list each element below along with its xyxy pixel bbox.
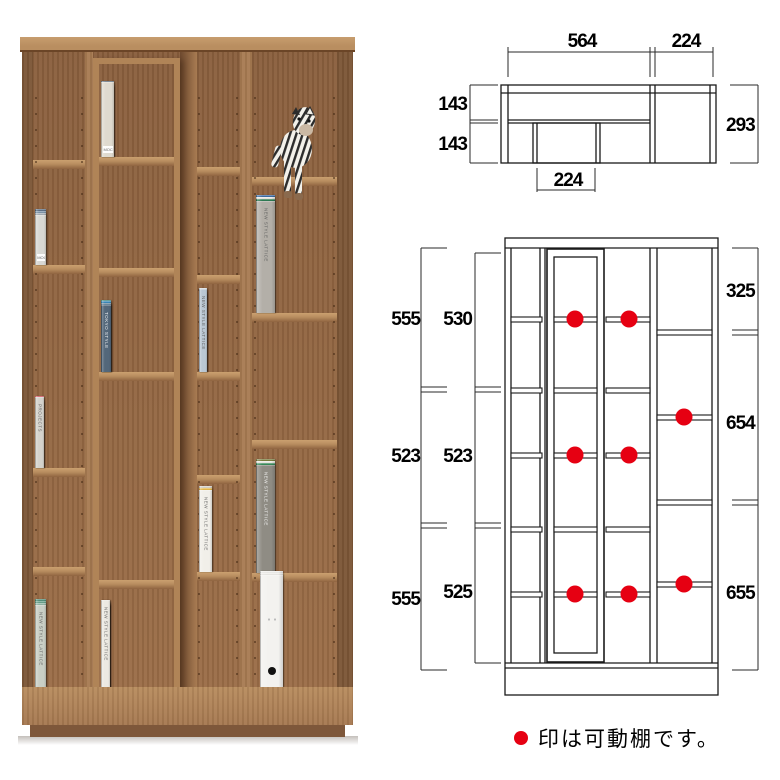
shelf-board	[197, 167, 240, 176]
frame-divider	[22, 52, 33, 698]
book-spine: MOCO	[35, 215, 46, 265]
dim-right-mid: 654	[726, 413, 756, 434]
dim-depth-back: 143	[438, 94, 467, 115]
binder-ring	[268, 667, 276, 675]
pin-holes	[236, 97, 238, 677]
frame-divider	[240, 52, 252, 698]
dim-slider-width: 224	[554, 170, 584, 191]
cabinet-top	[20, 37, 355, 52]
spine-label: NEW STYLE LATTICE	[204, 497, 209, 551]
sliding-unit-shelf	[99, 580, 174, 589]
shelf-board	[33, 160, 85, 169]
spine-label: NEW STYLE LATTICE	[104, 607, 109, 661]
pin-holes	[254, 97, 256, 677]
top-view-body	[501, 85, 716, 163]
dim-right-bottom: 655	[726, 583, 756, 604]
book-spine: NEW STYLE LATTICE	[256, 201, 275, 313]
product-page: MOCOMOCOMOCOMOCOPROJECTSPROJECTSPROJECTS…	[0, 0, 780, 780]
adjustable-shelf-dot	[567, 586, 584, 603]
pin-holes	[333, 97, 335, 677]
shelf-board	[33, 567, 85, 576]
front-view-diagram: 555 523 555 530 523 525 325 654 655	[388, 233, 780, 768]
shelf-board	[197, 372, 240, 381]
pin-holes	[35, 97, 37, 677]
legend-text: 印は可動棚です。	[538, 723, 720, 753]
shelf-board	[197, 275, 240, 284]
shelf-board	[252, 440, 337, 449]
adjustable-shelf-dot	[567, 311, 584, 328]
sliding-unit-shelf	[99, 372, 174, 381]
shelf-board	[33, 265, 85, 274]
legend-red-dot-icon	[514, 731, 528, 745]
cabinet-plinth	[30, 725, 345, 737]
legend: 印は可動棚です。	[514, 723, 720, 753]
frame-divider	[337, 52, 353, 698]
book-spine	[260, 575, 283, 687]
dim-depth-front: 143	[438, 134, 467, 155]
dim-width-main: 564	[568, 31, 598, 52]
book-spine: NEW STYLE LATTICE	[199, 289, 207, 372]
dim-inner-top: 530	[443, 309, 472, 330]
adjustable-shelf-dot	[621, 447, 638, 464]
zebra-plush-icon	[268, 101, 328, 203]
spine-label: PROJECTS	[38, 404, 43, 432]
slide-recess	[180, 52, 197, 698]
floor-shadow	[18, 736, 358, 745]
dim-outer-top: 555	[391, 309, 421, 330]
dim-inner-bottom: 525	[443, 582, 473, 603]
adjustable-shelf-dot	[621, 586, 638, 603]
book-spine: NEW STYLE LATTICE	[199, 490, 212, 572]
shelf-board	[33, 468, 85, 477]
dim-right-top: 325	[726, 281, 756, 302]
shelf-board	[197, 475, 240, 484]
spine-label: NEW STYLE LATTICE	[201, 296, 206, 350]
dim-depth-total: 293	[726, 115, 755, 136]
spine-label: TOKYO STYLE	[104, 312, 109, 349]
book-spine: TOKYO STYLE	[101, 305, 111, 372]
adjustable-shelf-dot	[676, 409, 693, 426]
spine-label: MOCO	[103, 146, 112, 153]
pin-holes	[198, 97, 200, 677]
book-spine: NEW STYLE LATTICE	[101, 600, 110, 692]
spine-label: NEW STYLE LATTICE	[39, 612, 44, 666]
adjustable-shelf-dot	[676, 576, 693, 593]
dim-width-side-col: 224	[672, 31, 702, 52]
binder-holes	[267, 618, 277, 621]
shelf-board	[197, 572, 240, 581]
book-spine: PROJECTS	[35, 397, 44, 468]
spine-label: NEW STYLE LATTICE	[264, 472, 269, 526]
sliding-unit-shelf	[99, 268, 174, 277]
product-photo: MOCOMOCOMOCOMOCOPROJECTSPROJECTSPROJECTS…	[20, 37, 355, 747]
top-view-diagram: 564 224 143 143 293 224	[430, 20, 780, 220]
dim-inner-mid: 523	[443, 446, 472, 467]
pin-holes	[81, 97, 83, 677]
front-view-body	[505, 238, 718, 695]
sliding-unit-shelf	[99, 157, 174, 166]
frame-divider	[85, 52, 93, 698]
spine-label: MOCO	[37, 254, 45, 261]
dim-outer-mid: 523	[391, 446, 420, 467]
adjustable-shelf-dot	[621, 311, 638, 328]
book-spine: NEW STYLE LATTICE	[256, 465, 275, 573]
spine-label: NEW STYLE LATTICE	[264, 208, 269, 262]
book-spine: NEW STYLE LATTICE	[35, 605, 46, 687]
cabinet-base	[22, 687, 353, 725]
shelf-board	[252, 313, 337, 322]
book-spine: MOCO	[101, 82, 114, 157]
adjustable-shelf-dot	[567, 447, 584, 464]
dim-outer-bottom: 555	[391, 589, 421, 610]
